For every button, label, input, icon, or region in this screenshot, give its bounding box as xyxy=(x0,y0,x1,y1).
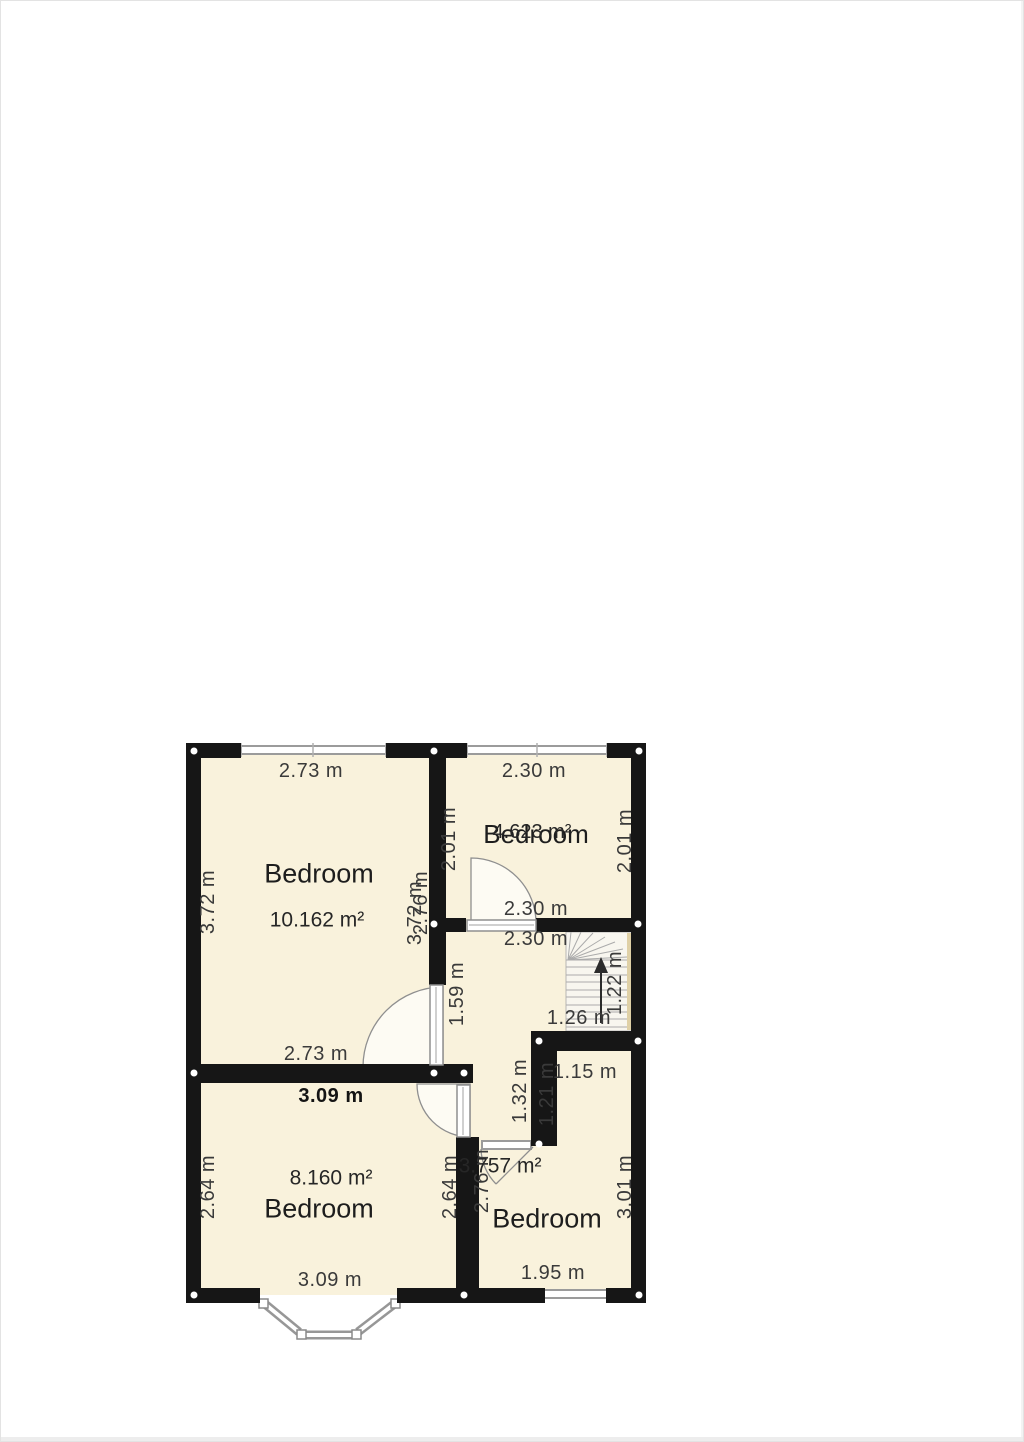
dimension-label: 2.64 m xyxy=(198,1155,218,1219)
wall xyxy=(186,1064,473,1083)
room-name-label: Bedroom xyxy=(492,1206,602,1233)
room-area-label: 3.757 m² xyxy=(459,1156,542,1177)
room-area-label: 4.623 m² xyxy=(493,822,572,842)
bay-glass xyxy=(265,1304,393,1335)
dimension-label: 2.73 m xyxy=(279,761,343,781)
dimension-label: 2.76 m xyxy=(411,871,431,935)
dimension-label: 1.21 m xyxy=(537,1062,557,1126)
dimension-label: 2.01 m xyxy=(439,807,459,871)
corner-dot xyxy=(191,1292,198,1299)
corner-dot xyxy=(536,1141,543,1148)
corner-dot xyxy=(431,748,438,755)
corner-dot xyxy=(635,921,642,928)
corner-dot xyxy=(536,1038,543,1045)
dimension-label: 3.72 m xyxy=(198,870,218,934)
corner-dot xyxy=(636,748,643,755)
dimension-label: 2.01 m xyxy=(615,809,635,873)
dimension-label: 1.32 m xyxy=(510,1059,530,1123)
corner-dot xyxy=(191,1070,198,1077)
dimension-label: 1.95 m xyxy=(521,1263,585,1283)
wall xyxy=(397,1288,545,1303)
corner-dot xyxy=(461,1292,468,1299)
dimension-label: 3.01 m xyxy=(615,1155,635,1219)
room-name-label: Bedroom xyxy=(264,1196,374,1223)
corner-dot xyxy=(636,1292,643,1299)
floorplan-page: 2.73 m2.30 m3.72 m2.01 m2.01 m3.72 m2.76… xyxy=(0,0,1024,1442)
dimension-label: 2.64 m xyxy=(440,1155,460,1219)
dimension-label: 1.26 m xyxy=(547,1008,611,1028)
dimension-label: 1.15 m xyxy=(553,1062,617,1082)
room-area-label: 8.160 m² xyxy=(290,1168,373,1189)
corner-dot xyxy=(191,748,198,755)
dimension-label: 2.73 m xyxy=(284,1044,348,1064)
window-bottom-right xyxy=(544,1290,607,1298)
bay-window xyxy=(259,1299,400,1339)
room-name-label: Bedroom xyxy=(264,861,374,888)
window-hall-partition xyxy=(482,1141,531,1149)
dimension-label: 2.30 m xyxy=(504,899,568,919)
corner-dot xyxy=(461,1070,468,1077)
floor-plan: 2.73 m2.30 m3.72 m2.01 m2.01 m3.72 m2.76… xyxy=(1,1,1024,1442)
dimension-label: 3.09 m xyxy=(298,1086,363,1106)
wall xyxy=(386,743,467,758)
dimension-label: 2.30 m xyxy=(502,761,566,781)
dimension-label: 1.59 m xyxy=(447,962,467,1026)
dimension-label: 1.22 m xyxy=(605,951,625,1015)
room-area-label: 10.162 m² xyxy=(270,910,365,931)
dimension-label: 2.30 m xyxy=(504,929,568,949)
dimension-label: 3.09 m xyxy=(298,1270,362,1290)
corner-dot xyxy=(431,1070,438,1077)
corner-dot xyxy=(635,1038,642,1045)
